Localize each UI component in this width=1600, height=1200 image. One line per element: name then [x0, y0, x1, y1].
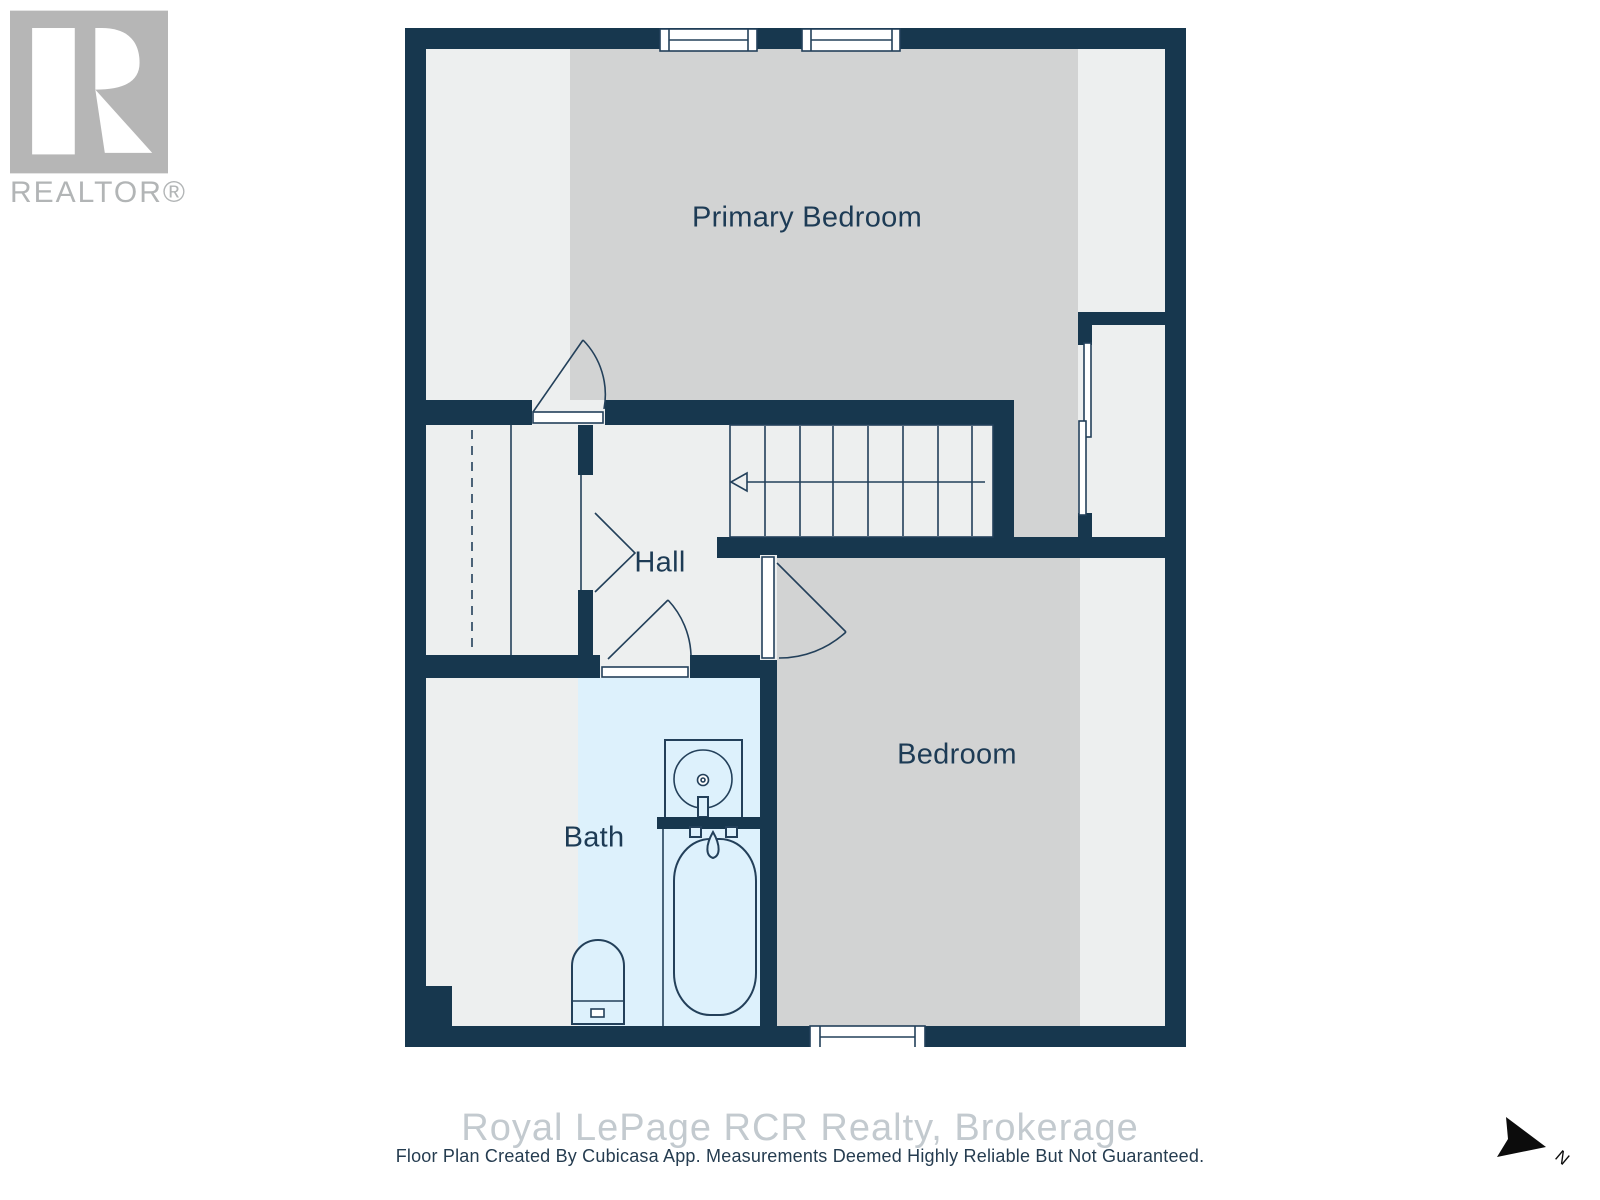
toilet-flush-button	[591, 1009, 604, 1017]
disclaimer-text: Floor Plan Created By Cubicasa App. Meas…	[0, 1146, 1600, 1167]
tub-handle-left	[690, 827, 701, 837]
realtor-logo-icon	[10, 10, 168, 174]
sliding-door-icon	[1079, 343, 1091, 515]
tub-spout-icon	[707, 832, 718, 858]
realtor-logo-text: REALTOR®	[10, 176, 185, 210]
toilet	[572, 940, 624, 1024]
north-arrow-label: N	[1551, 1147, 1573, 1168]
staircase	[730, 425, 993, 537]
window-top-right	[802, 29, 900, 51]
plan-symbols-layer	[405, 28, 1186, 1047]
bath-door-swing-icon	[608, 600, 691, 659]
sink	[665, 740, 742, 818]
closet-bifold-door-icon	[595, 513, 635, 592]
room-label-hall: Hall	[634, 547, 685, 580]
window-top-left	[660, 29, 757, 51]
bathtub	[663, 827, 756, 1026]
room-label-bath: Bath	[564, 822, 625, 855]
north-arrow-icon: N	[1470, 1098, 1580, 1168]
bedroom-door-swing-icon	[777, 563, 846, 658]
primary-bedroom-door-swing-icon	[533, 340, 605, 412]
closet-lines	[472, 425, 581, 655]
floor-plan-page: REALTOR®	[0, 0, 1600, 1200]
room-label-bedroom: Bedroom	[897, 739, 1017, 772]
window-bedroom-bottom	[810, 1026, 925, 1047]
room-label-primary-bedroom: Primary Bedroom	[692, 202, 922, 235]
bath-counter-wall	[657, 817, 760, 829]
tub-handle-right	[726, 827, 737, 837]
north-arrow-dart	[1497, 1117, 1546, 1157]
primary-bedroom-door-slab	[533, 412, 603, 423]
bedroom-door-slab	[762, 557, 774, 658]
bath-door-slab	[602, 667, 688, 677]
realtor-block-r-icon	[10, 10, 168, 174]
logo-r-stem	[32, 28, 75, 154]
